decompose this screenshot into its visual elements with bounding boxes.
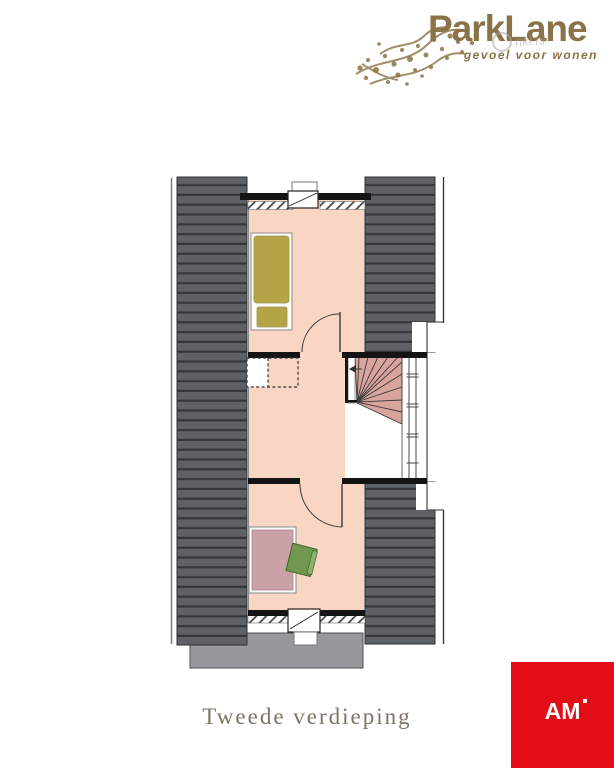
watermark: riki.nl	[492, 30, 546, 53]
roof-right-top	[365, 177, 444, 352]
bed	[251, 233, 292, 330]
am-logo-dot-icon	[583, 699, 587, 703]
roof-right-bottom	[365, 482, 444, 644]
floorplan-drawing	[165, 170, 455, 675]
watermark-ring-icon	[492, 31, 513, 52]
brochure-page: ParkLane gevoel voor wonen riki.nl	[0, 0, 614, 768]
am-logo-text: AM	[545, 698, 581, 725]
floorplan	[165, 170, 455, 675]
am-logo: AM	[511, 662, 614, 768]
watermark-text: riki.nl	[515, 32, 546, 49]
roof-left	[172, 177, 248, 645]
window-top	[288, 182, 318, 208]
